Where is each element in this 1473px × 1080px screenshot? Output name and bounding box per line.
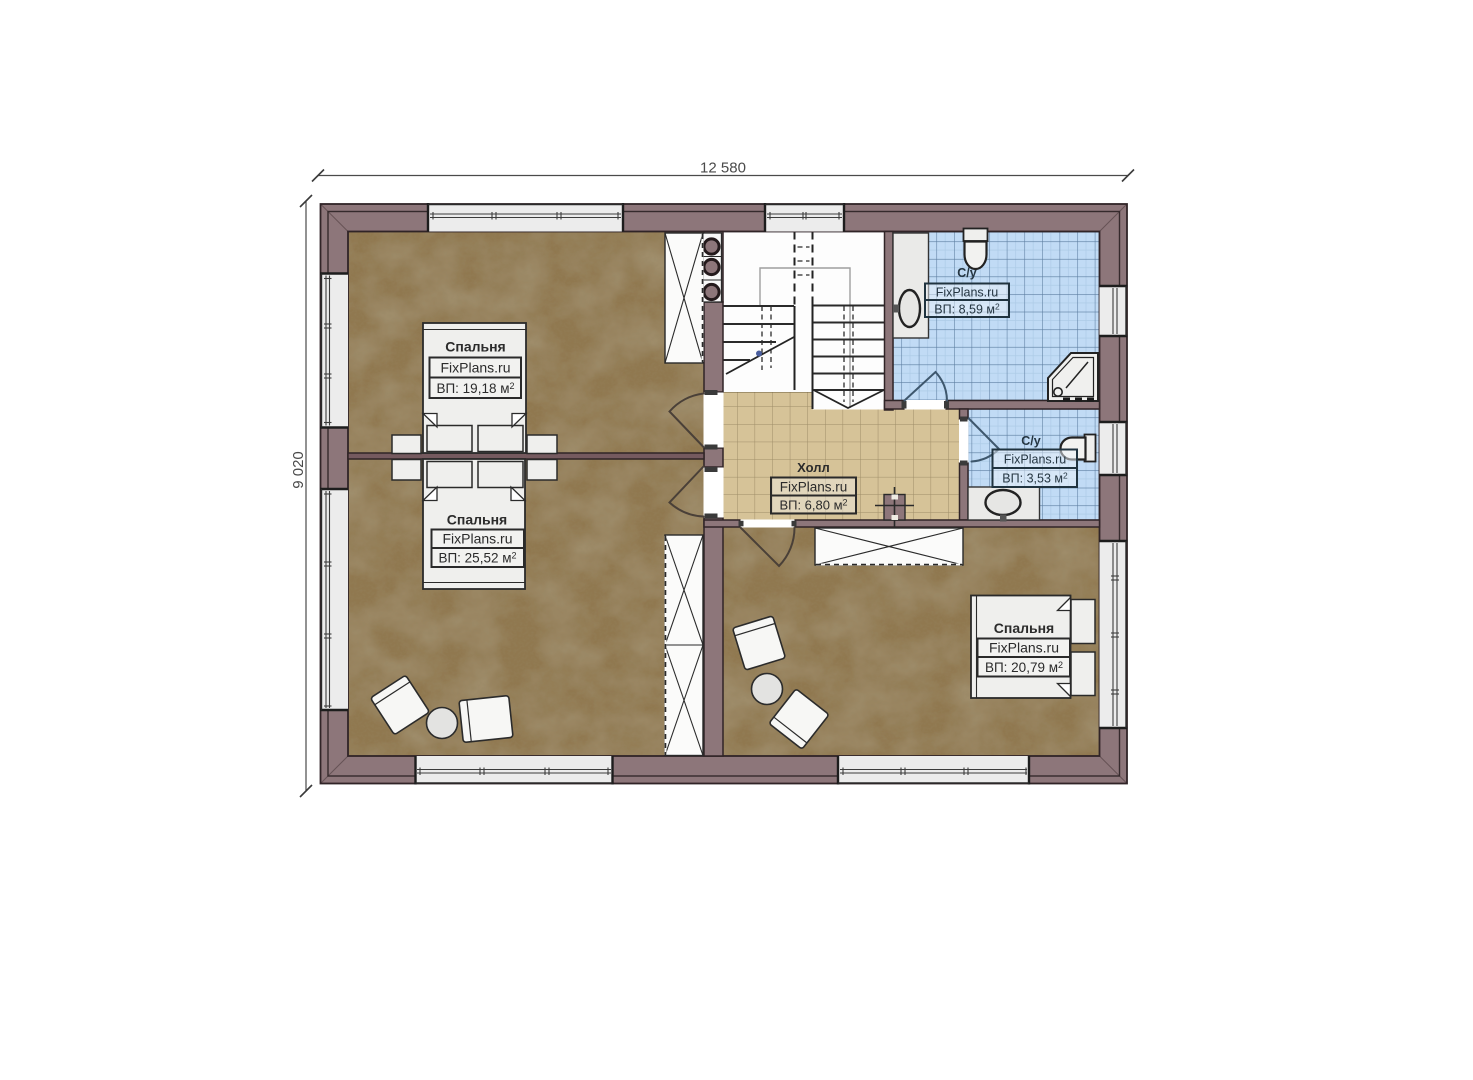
svg-text:ВП: 3,53 м2: ВП: 3,53 м2 <box>1002 471 1068 486</box>
svg-text:FixPlans.ru: FixPlans.ru <box>989 640 1059 656</box>
svg-text:ВП: 25,52 м2: ВП: 25,52 м2 <box>438 551 516 566</box>
svg-text:FixPlans.ru: FixPlans.ru <box>1004 453 1067 467</box>
svg-text:ВП: 6,80 м2: ВП: 6,80 м2 <box>779 498 847 513</box>
svg-text:Спальня: Спальня <box>447 512 507 528</box>
svg-text:FixPlans.ru: FixPlans.ru <box>936 286 999 300</box>
svg-text:ВП: 8,59 м2: ВП: 8,59 м2 <box>934 302 1000 317</box>
svg-text:FixPlans.ru: FixPlans.ru <box>442 531 512 547</box>
svg-text:Холл: Холл <box>797 460 830 475</box>
svg-text:Спальня: Спальня <box>994 620 1054 636</box>
svg-text:ВП: 20,79 м2: ВП: 20,79 м2 <box>985 660 1063 675</box>
svg-text:9 020: 9 020 <box>290 451 307 489</box>
svg-text:Спальня: Спальня <box>445 339 505 355</box>
svg-text:С/у: С/у <box>1021 434 1041 448</box>
svg-text:FixPlans.ru: FixPlans.ru <box>440 360 510 376</box>
svg-text:FixPlans.ru: FixPlans.ru <box>780 480 848 495</box>
svg-text:ВП: 19,18 м2: ВП: 19,18 м2 <box>436 381 514 396</box>
svg-text:С/у: С/у <box>957 266 977 280</box>
svg-text:12 580: 12 580 <box>700 160 746 177</box>
